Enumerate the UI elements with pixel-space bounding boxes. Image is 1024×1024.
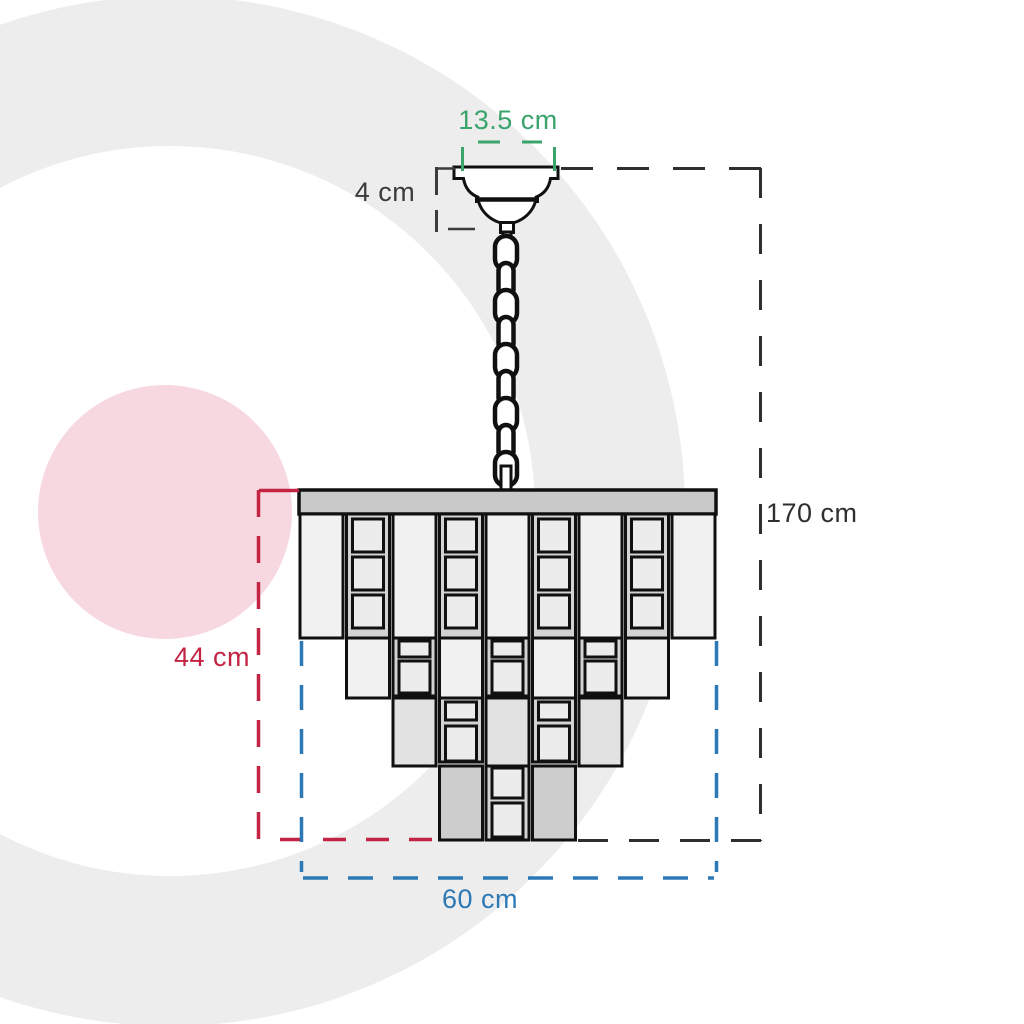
- tier1-panel: [486, 514, 529, 638]
- tier1-panel: [393, 514, 436, 638]
- top-plate: [299, 490, 716, 514]
- crystal-facet: [539, 557, 570, 590]
- tier4-panel: [440, 766, 483, 840]
- crystal-facet: [446, 557, 477, 590]
- crystal-facet: [446, 726, 477, 761]
- chandelier-illustration: [299, 167, 716, 840]
- tier1-panel: [579, 514, 622, 638]
- crystal-facet: [492, 641, 523, 657]
- dim-body-height-label: 44 cm: [152, 644, 272, 671]
- tier1-panel: [672, 514, 715, 638]
- crystal-tiers: [300, 514, 715, 840]
- tier4-panel: [533, 766, 576, 840]
- crystal-facet: [539, 595, 570, 628]
- crystal-facet: [446, 702, 477, 720]
- tier2-panel: [626, 638, 669, 698]
- tier3-panel: [393, 698, 436, 766]
- crystal-facet: [399, 641, 430, 657]
- crystal-facet: [492, 768, 523, 798]
- watermark-pink-circle: [38, 385, 292, 639]
- crystal-facet: [492, 803, 523, 837]
- tier3-panel: [486, 698, 529, 766]
- dim-canopy-height-label: 4 cm: [325, 179, 445, 206]
- tier1-panel: [300, 514, 343, 638]
- dim-total-height-label: 170 cm: [766, 500, 858, 527]
- tier2-panel: [440, 638, 483, 698]
- crystal-facet: [353, 595, 384, 628]
- dim-body-width-label: 60 cm: [420, 886, 540, 913]
- crystal-facet: [539, 726, 570, 761]
- crystal-facet: [632, 519, 663, 552]
- crystal-facet: [585, 641, 616, 657]
- crystal-facet: [353, 519, 384, 552]
- plate-pin: [501, 466, 511, 492]
- crystal-facet: [632, 595, 663, 628]
- crystal-facet: [446, 519, 477, 552]
- crystal-facet: [585, 661, 616, 693]
- tier3-panel: [579, 698, 622, 766]
- crystal-facet: [446, 595, 477, 628]
- crystal-facet: [492, 661, 523, 693]
- crystal-facet: [539, 702, 570, 720]
- diagram-canvas: 13.5 cm 4 cm 170 cm 44 cm 60 cm: [0, 0, 1024, 1024]
- crystal-facet: [399, 661, 430, 693]
- chandelier-dimension-diagram: [0, 0, 1024, 1024]
- crystal-facet: [632, 557, 663, 590]
- dim-canopy-width-label: 13.5 cm: [438, 107, 578, 134]
- tier2-panel: [347, 638, 390, 698]
- crystal-facet: [539, 519, 570, 552]
- crystal-facet: [353, 557, 384, 590]
- tier2-panel: [533, 638, 576, 698]
- chain: [495, 236, 517, 486]
